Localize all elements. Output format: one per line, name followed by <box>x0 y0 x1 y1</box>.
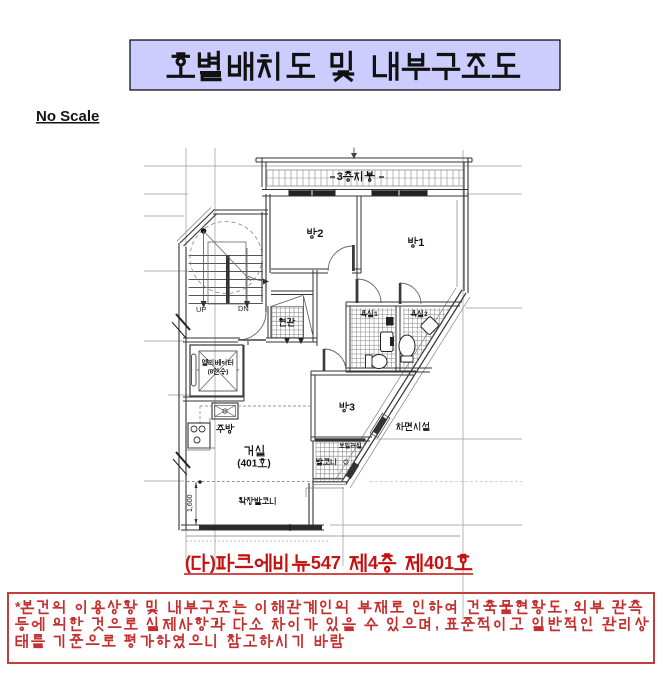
svg-text:2: 2 <box>317 228 323 240</box>
svg-text:,: , <box>435 617 439 633</box>
svg-text:): ) <box>267 459 270 470</box>
svg-text:*: * <box>15 600 21 616</box>
svg-text:(: ( <box>185 553 191 573</box>
svg-text:(401: (401 <box>237 459 257 470</box>
svg-text:(8: (8 <box>208 369 214 376</box>
svg-text:): ) <box>210 553 216 573</box>
svg-text:1: 1 <box>374 311 378 318</box>
svg-text:3: 3 <box>337 171 343 183</box>
svg-text:1: 1 <box>418 237 424 249</box>
svg-text:547: 547 <box>311 553 341 573</box>
svg-text:No Scale: No Scale <box>36 108 99 125</box>
svg-text:DN: DN <box>238 304 249 313</box>
svg-text:UP: UP <box>196 305 206 314</box>
svg-text:,: , <box>564 600 568 616</box>
svg-text:4: 4 <box>368 553 378 573</box>
svg-text:401: 401 <box>424 553 454 573</box>
svg-text:): ) <box>226 369 228 376</box>
svg-text:2: 2 <box>424 311 428 318</box>
svg-text:3: 3 <box>349 402 355 414</box>
svg-text:1,600: 1,600 <box>187 494 194 512</box>
